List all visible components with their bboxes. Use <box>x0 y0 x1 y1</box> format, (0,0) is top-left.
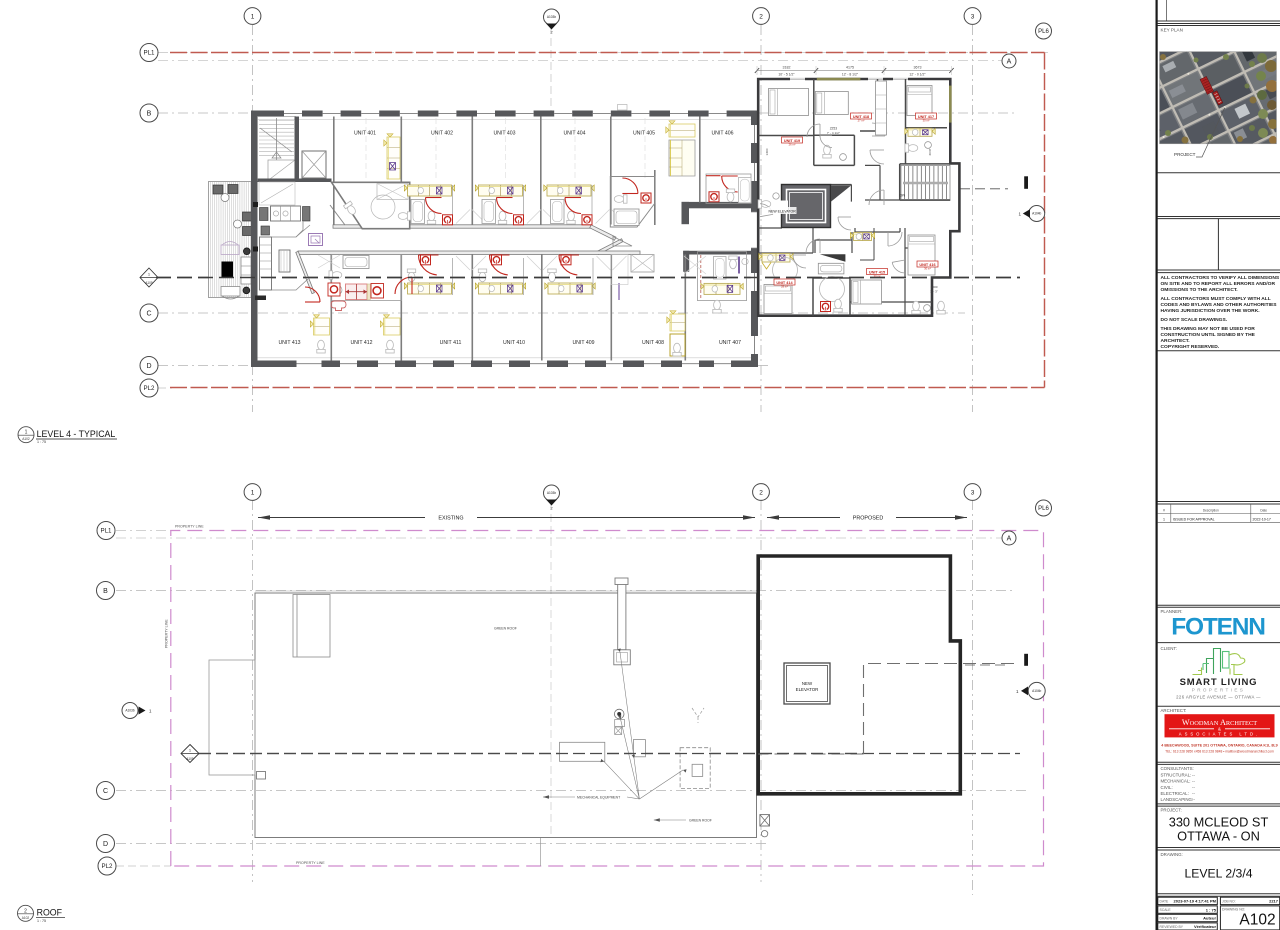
svg-text:OMISSIONS TO THE ARCHITECT.: OMISSIONS TO THE ARCHITECT. <box>1161 287 1239 293</box>
svg-text:A: A <box>1007 59 1012 66</box>
svg-text:TEL: 613 228 9850 x458 613 228: TEL: 613 228 9850 x458 613 228 9848 • ma… <box>1165 749 1274 753</box>
svg-text:UNIT 405: UNIT 405 <box>633 131 655 137</box>
svg-text:A104b: A104b <box>1032 212 1041 216</box>
svg-text:PL6: PL6 <box>1038 506 1049 512</box>
svg-text:1000: 1000 <box>931 285 938 289</box>
svg-text:A103b: A103b <box>547 491 556 495</box>
svg-text:UNIT 414: UNIT 414 <box>776 281 793 285</box>
svg-text:UNIT 402: UNIT 402 <box>431 131 453 137</box>
svg-text:Description: Description <box>1203 509 1219 513</box>
svg-text:#: # <box>1163 509 1165 513</box>
svg-text:UNIT 410: UNIT 410 <box>503 340 525 346</box>
svg-text:CLIENT:: CLIENT: <box>1161 646 1177 651</box>
svg-text:2: 2 <box>550 31 552 35</box>
svg-text:EXISTING: EXISTING <box>438 516 463 522</box>
svg-text:A105: A105 <box>145 281 153 285</box>
svg-text:PROJECT:: PROJECT: <box>1161 808 1182 813</box>
svg-text:ALL CONTRACTORS MUST COMPLY WI: ALL CONTRACTORS MUST COMPLY WITH ALL <box>1161 296 1271 302</box>
svg-text:4 BEECHWOOD, SUITE 201 OTTAWA: 4 BEECHWOOD, SUITE 201 OTTAWA, ONTARIO, … <box>1161 743 1277 747</box>
svg-text:UNIT 401: UNIT 401 <box>354 131 376 137</box>
svg-text:Date: Date <box>1260 509 1267 513</box>
svg-text:C: C <box>103 788 108 795</box>
svg-text:PROJECT: PROJECT <box>1174 152 1196 157</box>
svg-text:OTTAWA - ON: OTTAWA - ON <box>1177 829 1260 844</box>
svg-text:MECHANICAL:: MECHANICAL: <box>1161 779 1191 784</box>
svg-text:1: 1 <box>25 430 28 436</box>
svg-text:NEW ELEVATOR: NEW ELEVATOR <box>769 209 797 213</box>
svg-text:UNIT 406: UNIT 406 <box>711 131 733 137</box>
svg-text:NEW: NEW <box>802 681 813 686</box>
svg-text:PL6: PL6 <box>1038 29 1049 35</box>
svg-text:C: C <box>146 311 151 318</box>
svg-text:UNIT 417: UNIT 417 <box>918 115 934 119</box>
svg-text:DRAWING:: DRAWING: <box>1161 852 1183 857</box>
svg-text:27 m²: 27 m² <box>858 119 865 123</box>
svg-text:REVIEWED BY: REVIEWED BY <box>1160 925 1184 929</box>
svg-text:10' - 5 1/2": 10' - 5 1/2" <box>778 73 795 77</box>
svg-text:ELEVATOR: ELEVATOR <box>796 687 819 692</box>
svg-text:LEVEL 4 - TYPICAL: LEVEL 4 - TYPICAL <box>37 429 116 439</box>
svg-text:A102: A102 <box>1239 912 1275 929</box>
svg-text:1 : 75: 1 : 75 <box>37 919 46 923</box>
svg-text:DO NOT SCALE DRAWINGS.: DO NOT SCALE DRAWINGS. <box>1161 317 1228 323</box>
svg-text:DN: DN <box>900 193 906 198</box>
svg-text:1: 1 <box>1163 517 1165 521</box>
svg-text:3673: 3673 <box>914 65 922 69</box>
svg-text:PROPOSED: PROPOSED <box>853 516 884 522</box>
svg-text:SCALE: SCALE <box>1160 908 1172 912</box>
svg-text:PL1: PL1 <box>100 528 112 535</box>
svg-text:1 : 75: 1 : 75 <box>1206 907 1217 912</box>
svg-text:3: 3 <box>971 489 975 496</box>
svg-text:PL2: PL2 <box>101 863 113 870</box>
svg-text:A105: A105 <box>186 757 194 761</box>
svg-text:JOB NO:: JOB NO: <box>1222 899 1236 903</box>
svg-text:THIS DRAWING MAY NOT BE USED F: THIS DRAWING MAY NOT BE USED FOR <box>1161 326 1256 332</box>
svg-text:28 m²: 28 m² <box>781 285 788 289</box>
svg-text:DATE: DATE <box>1160 900 1170 904</box>
svg-text:CIVIL:: CIVIL: <box>1161 785 1173 790</box>
svg-text:KEY PLAN: KEY PLAN <box>1161 28 1183 33</box>
svg-text:A102: A102 <box>22 437 30 441</box>
svg-text:PROPERTIES: PROPERTIES <box>1192 688 1246 693</box>
svg-text:1300: 1300 <box>765 148 769 155</box>
svg-text:D: D <box>146 363 151 370</box>
svg-text:2037: 2037 <box>928 148 932 155</box>
svg-text:B: B <box>103 588 108 595</box>
svg-text:3: 3 <box>971 13 975 20</box>
svg-text:A103b: A103b <box>547 15 556 19</box>
svg-text:D: D <box>103 841 108 848</box>
svg-text:ISSUED FOR APPROVAL: ISSUED FOR APPROVAL <box>1173 517 1215 521</box>
svg-text:2: 2 <box>550 507 552 511</box>
svg-text:UNIT 408: UNIT 408 <box>642 340 664 346</box>
svg-text:CONSTRUCTION UNTIL SIGNED BY T: CONSTRUCTION UNTIL SIGNED BY THE <box>1161 332 1256 338</box>
svg-text:ARCHITECT.: ARCHITECT. <box>1161 338 1191 344</box>
svg-text:UNIT 409: UNIT 409 <box>572 340 594 346</box>
svg-text:226 ARGYLE AVENUE — OTTAWA: 226 ARGYLE AVENUE — OTTAWA — <box>1176 695 1261 700</box>
svg-text:STRUCTURAL:: STRUCTURAL: <box>1161 773 1192 778</box>
svg-text:ASSOCIATES LTD.: ASSOCIATES LTD. <box>1179 731 1260 736</box>
svg-text:12' - 0 1/2": 12' - 0 1/2" <box>909 73 926 77</box>
svg-text:SMART LIVING: SMART LIVING <box>1180 677 1258 688</box>
svg-text:CONSULTANTS:: CONSULTANTS: <box>1161 766 1194 771</box>
svg-text:4175: 4175 <box>846 65 854 69</box>
svg-text:30 m²: 30 m² <box>924 267 931 271</box>
svg-text:1 : 75: 1 : 75 <box>37 440 46 444</box>
svg-text:2: 2 <box>759 13 763 20</box>
svg-text:UNIT 404: UNIT 404 <box>563 131 585 137</box>
svg-text:26 m²: 26 m² <box>789 143 796 147</box>
svg-text:1: 1 <box>251 13 255 20</box>
svg-text:ARCHITECT:: ARCHITECT: <box>1161 708 1187 713</box>
svg-text:Auteur: Auteur <box>1203 916 1216 921</box>
svg-text:2253: 2253 <box>830 126 838 130</box>
svg-text:HAVING JURISDICTION OVER THE W: HAVING JURISDICTION OVER THE WORK. <box>1161 308 1261 314</box>
svg-text:MECHANICAL EQUIPMENT: MECHANICAL EQUIPMENT <box>577 796 620 800</box>
svg-text:A102: A102 <box>22 916 30 920</box>
svg-text:UNIT 416: UNIT 416 <box>919 263 935 267</box>
svg-text:3' - 3": 3' - 3" <box>930 290 938 294</box>
svg-text:UNIT 403: UNIT 403 <box>493 131 515 137</box>
svg-text:2023-07-19 4:17:41 PM: 2023-07-19 4:17:41 PM <box>1174 899 1217 904</box>
svg-text:A: A <box>1007 536 1012 543</box>
svg-text:1: 1 <box>251 489 255 496</box>
svg-text:2217: 2217 <box>1269 898 1279 903</box>
svg-text:UNIT 418: UNIT 418 <box>853 115 869 119</box>
svg-text:3182: 3182 <box>783 65 791 69</box>
svg-text:ALL CONTRACTORS TO VERIFY ALL: ALL CONTRACTORS TO VERIFY ALL DIMENSIONS <box>1161 275 1280 281</box>
svg-text:30 m²: 30 m² <box>923 119 930 123</box>
svg-text:ELECTRICAL:: ELECTRICAL: <box>1161 791 1189 796</box>
svg-text:A104b: A104b <box>1032 689 1041 693</box>
svg-text:COPYRIGHT RESERVED.: COPYRIGHT RESERVED. <box>1161 344 1220 350</box>
svg-text:2: 2 <box>759 489 763 496</box>
svg-text:ROOF: ROOF <box>37 908 63 918</box>
svg-text:UNIT 419: UNIT 419 <box>784 139 800 143</box>
svg-text:UNIT 411: UNIT 411 <box>440 340 462 346</box>
svg-text:330 MCLEOD ST: 330 MCLEOD ST <box>1169 815 1269 830</box>
svg-text:PROPERTY LINE: PROPERTY LINE <box>296 861 325 865</box>
svg-text:PL1: PL1 <box>143 50 155 57</box>
svg-text:UNIT 407: UNIT 407 <box>719 340 741 346</box>
svg-text:PROPERTY LINE: PROPERTY LINE <box>175 525 204 529</box>
svg-text:GREEN ROOF: GREEN ROOF <box>689 819 712 823</box>
svg-text:CODES AND BYLAWS AND OTHER AUT: CODES AND BYLAWS AND OTHER AUTHORITIES <box>1161 302 1278 308</box>
svg-text:FOTENN: FOTENN <box>1171 614 1265 641</box>
svg-text:2: 2 <box>24 908 27 914</box>
svg-text:PROPERTY LINE: PROPERTY LINE <box>165 619 169 648</box>
svg-text:GREEN ROOF: GREEN ROOF <box>494 626 517 630</box>
svg-text:UNIT 412: UNIT 412 <box>350 340 372 346</box>
svg-text:A103b: A103b <box>125 709 134 713</box>
svg-text:Vérificateur: Vérificateur <box>1194 924 1216 929</box>
svg-text:ON SITE AND TO REPORT ALL ERRO: ON SITE AND TO REPORT ALL ERRORS AND/OR <box>1161 281 1276 287</box>
svg-text:LANDSCAPING:: LANDSCAPING: <box>1161 797 1194 802</box>
svg-text:2022-10-17: 2022-10-17 <box>1253 517 1271 521</box>
svg-text:LEVEL 2/3/4: LEVEL 2/3/4 <box>1185 867 1253 881</box>
svg-text:B: B <box>147 111 152 118</box>
svg-text:UNIT 413: UNIT 413 <box>278 340 300 346</box>
svg-text:DRAWN BY: DRAWN BY <box>1160 917 1179 921</box>
svg-text:7' - 4 1/2": 7' - 4 1/2" <box>827 131 840 135</box>
svg-text:UNIT 415: UNIT 415 <box>869 270 885 274</box>
svg-text:PL2: PL2 <box>143 385 155 392</box>
svg-text:12' - 8 1/2": 12' - 8 1/2" <box>842 73 859 77</box>
